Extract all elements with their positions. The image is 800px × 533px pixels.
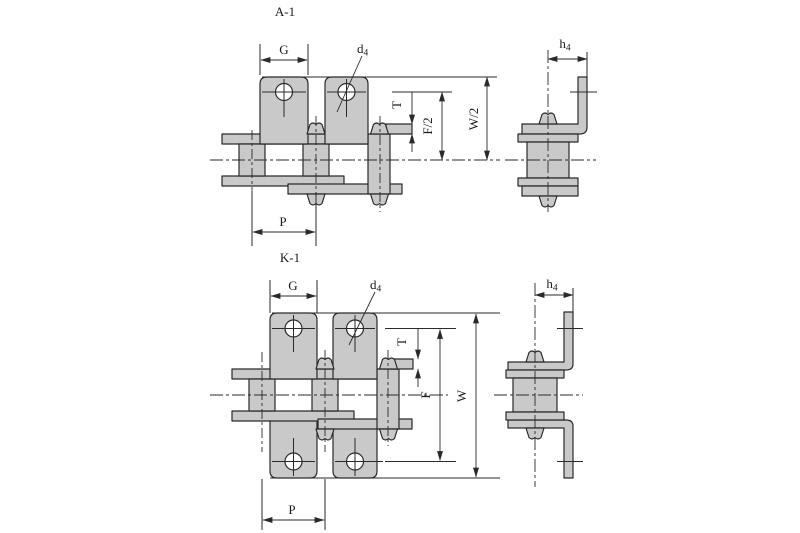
- k1-pin-head-top-3: [380, 358, 398, 369]
- k1-p-label: P: [288, 502, 295, 517]
- a1-assembly: A-1 G: [210, 4, 597, 246]
- a1-bent-tab-edge: [386, 124, 412, 134]
- k1-t-label: T: [394, 338, 409, 346]
- a1-connecting-pin: [368, 134, 390, 194]
- k1-g-label: G: [288, 278, 297, 293]
- k1-title: K-1: [280, 250, 300, 265]
- a1-t-label: T: [389, 101, 404, 109]
- a1-pin-head-top-3: [371, 123, 389, 134]
- a1-bent-attachment-bracket: [522, 77, 587, 134]
- a1-title: A-1: [275, 4, 295, 19]
- a1-f2-label: F/2: [420, 117, 435, 134]
- k1-w-label: W: [454, 389, 469, 402]
- a1-side-view: [210, 77, 500, 246]
- a1-h4-label: h4: [559, 36, 571, 54]
- a1-w2-label: W/2: [466, 108, 481, 130]
- a1-end-view: h4: [505, 36, 597, 212]
- k1-end-view: h4: [494, 276, 583, 487]
- k1-side-view: [210, 313, 448, 478]
- k1-f-label: F: [418, 391, 433, 398]
- a1-pin-head-bottom-3: [371, 194, 389, 205]
- a1-g-label: G: [279, 42, 288, 57]
- k1-d4-label: d4: [370, 277, 382, 295]
- a1-d4-label: d4: [357, 41, 369, 59]
- chain-attachment-drawing: A-1 G: [0, 0, 800, 533]
- a1-p-label: P: [279, 214, 286, 229]
- drawing-canvas: A-1 G: [0, 0, 800, 533]
- k1-pin-head-bottom-3: [380, 429, 398, 440]
- k1-assembly: K-1: [210, 250, 583, 530]
- k1-h4-label: h4: [546, 276, 558, 294]
- a1-end-plate-outer-lower: [522, 186, 578, 196]
